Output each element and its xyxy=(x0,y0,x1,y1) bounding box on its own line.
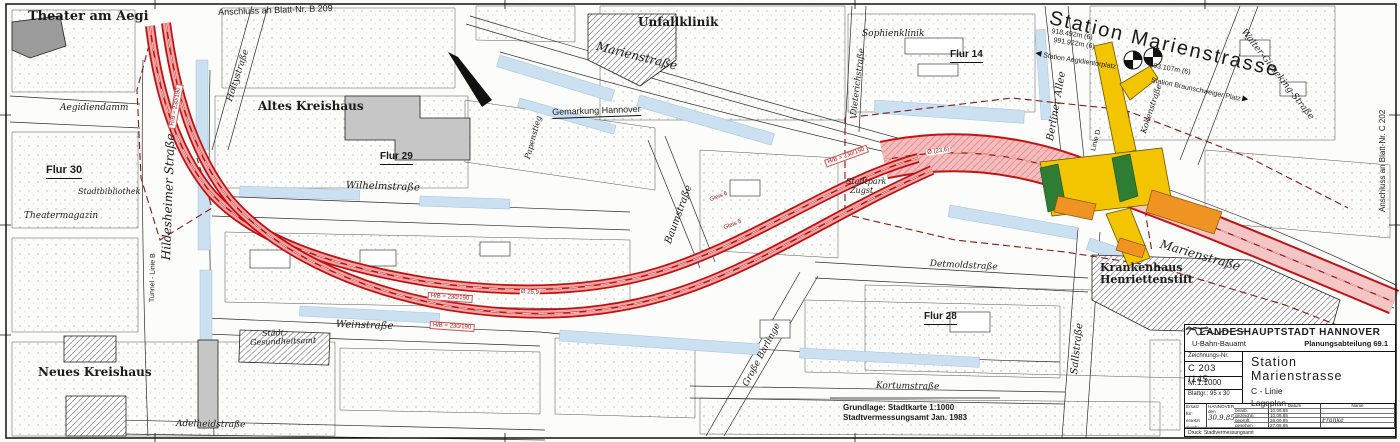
route-label-dia-1: Ø 25,9 xyxy=(520,289,540,296)
neues-kreishaus-building-1 xyxy=(64,336,116,362)
drawing-scale: M.1:1000 xyxy=(1185,377,1242,390)
label-sophienklinik: Sophienklinik xyxy=(862,30,924,39)
label-flur-30: Flur 30 xyxy=(46,165,82,179)
label-kortumstrasse: Kortumstraße xyxy=(876,382,940,393)
department-name: Planungsabteilung 69.1 xyxy=(1304,339,1388,348)
label-krankenhaus-1: Krankenhaus xyxy=(1100,262,1182,274)
hand-date: 30.9.85 xyxy=(1208,414,1234,422)
neues-kreishaus-building-2 xyxy=(66,396,126,436)
print-note: Druck: Stadtvermessungsamt xyxy=(1185,429,1395,437)
label-krankenhaus-2: Henriettenstift xyxy=(1100,274,1193,286)
row-label-gesehen: gesehen xyxy=(1234,423,1269,428)
label-flur-14: Flur 14 xyxy=(950,50,983,63)
label-flur-29: Flur 29 xyxy=(380,152,413,165)
title-block: LANDESHAUPTSTADT HANNOVER U-Bahn-Bauamt … xyxy=(1184,324,1396,437)
label-anschluss-right: Anschluss an Blatt-Nr. C 202 xyxy=(1379,110,1387,212)
note-grundlage-1: Grundlage: Stadtkarte 1:1000 xyxy=(843,404,954,412)
label-altes-kreishaus: Altes Kreishaus xyxy=(258,100,364,113)
label-flur-28: Flur 28 xyxy=(924,312,957,325)
signature-cell: HANNOVER, den 30.9.85 xyxy=(1207,404,1234,428)
drawing-no-label: Zeichnungs-Nr. xyxy=(1185,352,1242,362)
map-canvas: Theater am Aegi Anschluss an Blatt-Nr. B… xyxy=(0,0,1400,442)
label-weinstrasse: Weinstraße xyxy=(336,320,394,333)
row-date-gesehen: 27.09.85 xyxy=(1269,423,1321,428)
arrow-left-icon xyxy=(1035,50,1042,57)
approval-table: Datum Name Ersatz für: ersetzt durch: ge… xyxy=(1185,404,1395,429)
label-theater-am-aegi: Theater am Aegi xyxy=(28,10,149,24)
note-grundlage-2: Stadtvermessungsamt Jan. 1983 xyxy=(843,414,967,422)
drawing-title: Station Marienstrasse xyxy=(1251,355,1387,383)
label-aegidiendamm: Aegidiendamm xyxy=(60,104,128,113)
label-theatermagazin: Theatermagazin xyxy=(24,212,98,221)
label-tunnel-linie-b: Tunnel - Linie B xyxy=(149,253,157,302)
label-neues-kreishaus: Neues Kreishaus xyxy=(38,366,152,379)
row-name-gesehen xyxy=(1321,423,1395,428)
drawing-line-name: C - Linie xyxy=(1251,386,1387,396)
label-adelheidstrasse: Adelheidstraße xyxy=(176,420,246,431)
sheet-size: Blattgr.: 95 x 30 xyxy=(1185,390,1242,400)
office-name: U-Bahn-Bauamt xyxy=(1192,339,1246,348)
label-stadtbibliothek: Stadtbibliothek xyxy=(78,188,140,196)
arrow-right-icon xyxy=(1242,95,1249,102)
drawing-no: C 203 /145 xyxy=(1185,362,1242,377)
neues-kreishaus-building-3 xyxy=(198,340,218,428)
drawing-title-area: Station Marienstrasse C - Linie Lageplan xyxy=(1243,352,1395,403)
ersetzt-durch: ersetzt durch: xyxy=(1186,418,1205,428)
ersatz-fuer: Ersatz für: xyxy=(1186,404,1205,418)
city-date-label: HANNOVER, den xyxy=(1208,404,1234,414)
label-unfallklinik: Unfallklinik xyxy=(638,16,718,29)
drawing-meta: Zeichnungs-Nr. C 203 /145 M.1:1000 Blatt… xyxy=(1185,352,1243,403)
label-stadtpark-2: Zugst. xyxy=(850,187,876,195)
ersatz-cell: Ersatz für: ersetzt durch: gesehen: xyxy=(1185,404,1207,428)
